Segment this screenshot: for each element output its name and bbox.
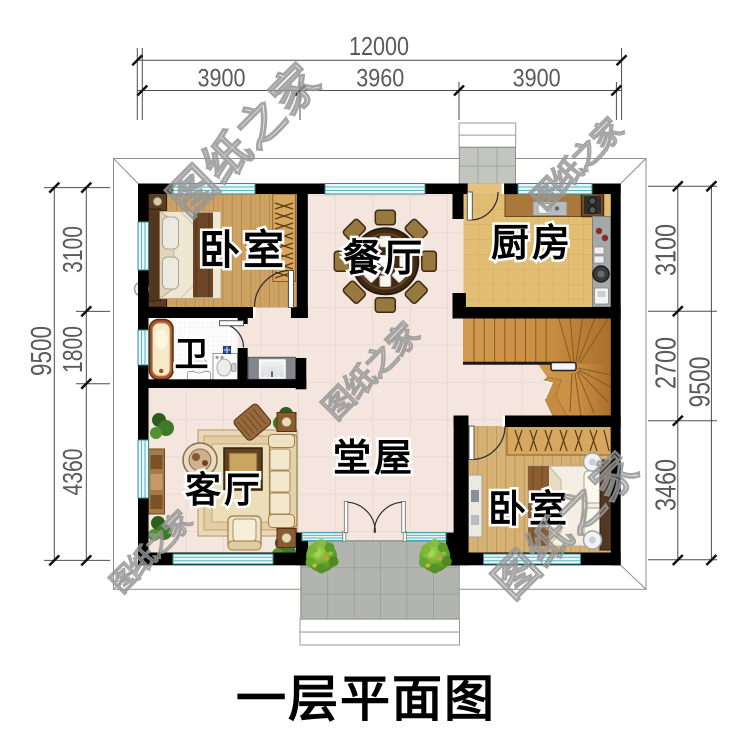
svg-text:3100: 3100 (651, 224, 683, 276)
svg-text:厨房: 厨房 (491, 223, 573, 265)
svg-text:12000: 12000 (349, 31, 409, 61)
svg-text:3460: 3460 (651, 459, 683, 511)
svg-text:3960: 3960 (356, 65, 404, 93)
svg-text:客厅: 客厅 (185, 469, 263, 510)
svg-text:4360: 4360 (57, 449, 88, 496)
svg-text:一层平面图: 一层平面图 (236, 671, 496, 727)
svg-text:1800: 1800 (57, 326, 88, 373)
svg-text:2700: 2700 (651, 337, 683, 389)
svg-text:9500: 9500 (685, 357, 717, 408)
svg-text:堂屋: 堂屋 (333, 438, 415, 480)
svg-text:餐厅: 餐厅 (343, 238, 425, 280)
svg-text:3900: 3900 (198, 65, 246, 93)
svg-text:3900: 3900 (513, 65, 561, 93)
svg-text:3100: 3100 (57, 226, 88, 273)
svg-text:卫: 卫 (175, 336, 212, 374)
svg-text:卧室: 卧室 (199, 227, 287, 273)
svg-text:9500: 9500 (26, 326, 58, 376)
